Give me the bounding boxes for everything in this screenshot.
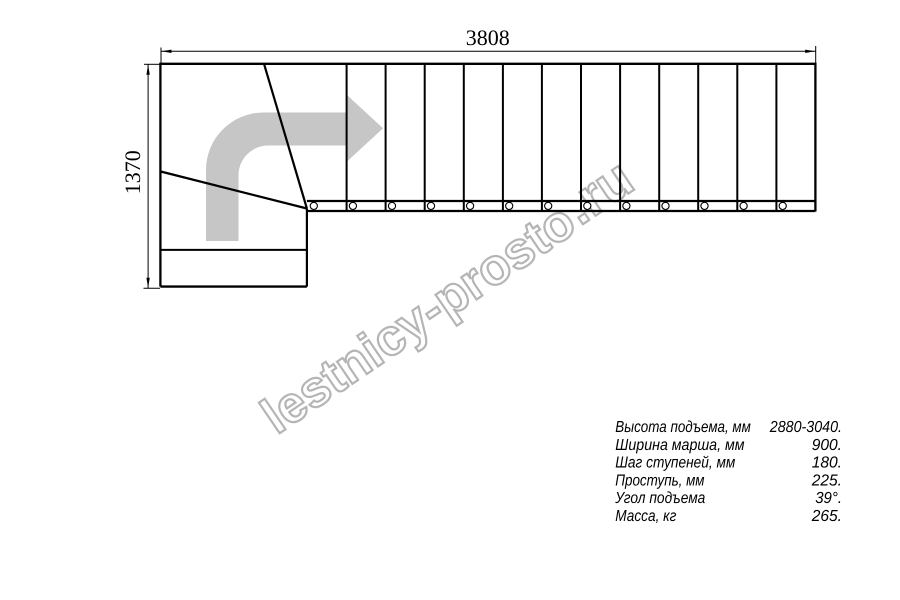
svg-text:Угол подъема: Угол подъема	[614, 490, 705, 507]
svg-text:1370: 1370	[120, 150, 145, 194]
svg-text:Ширина марша, мм: Ширина марша, мм	[615, 437, 744, 454]
svg-text:900.: 900.	[812, 437, 842, 454]
svg-text:39°.: 39°.	[815, 490, 842, 507]
svg-text:Шаг ступеней, мм: Шаг ступеней, мм	[615, 455, 735, 472]
svg-text:Высота подъема, мм: Высота подъема, мм	[615, 419, 751, 436]
svg-text:180.: 180.	[812, 455, 842, 472]
svg-text:225.: 225.	[811, 472, 842, 489]
svg-text:2880-3040.: 2880-3040.	[769, 419, 842, 436]
svg-text:Проступь, мм: Проступь, мм	[615, 472, 704, 489]
svg-text:Масса, кг: Масса, кг	[615, 508, 676, 525]
svg-text:3808: 3808	[466, 25, 510, 50]
svg-text:265.: 265.	[811, 508, 842, 525]
svg-text:lestnicy-prosto: lestnicy-prosto	[251, 192, 585, 445]
